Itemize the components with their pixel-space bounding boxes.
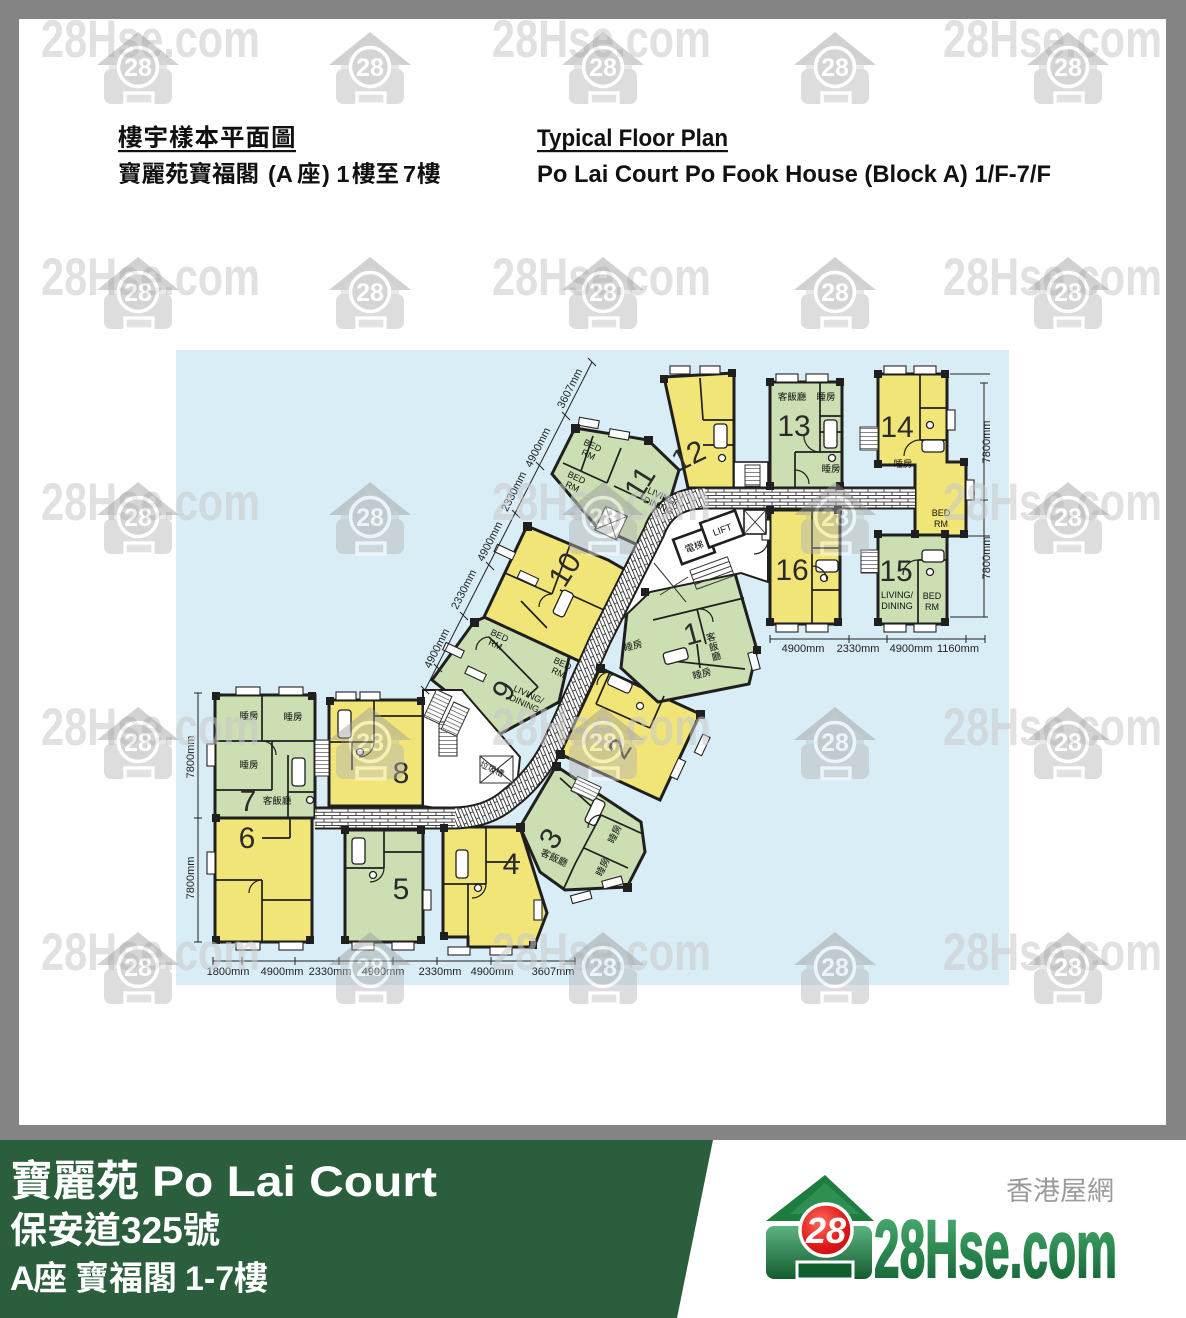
svg-text:Po Lai Court: Po Lai Court (152, 1158, 437, 1206)
svg-text:1-7: 1-7 (185, 1260, 234, 1298)
svg-text:7800mm: 7800mm (185, 857, 197, 900)
svg-text:(A: (A (268, 161, 293, 187)
svg-text:6: 6 (239, 822, 256, 855)
svg-text:15: 15 (879, 555, 912, 588)
svg-text:325: 325 (121, 1210, 183, 1251)
svg-text:2330mm: 2330mm (419, 966, 462, 978)
svg-text:5: 5 (393, 873, 410, 906)
svg-text:A: A (10, 1260, 35, 1298)
svg-text:4900mm: 4900mm (782, 643, 825, 655)
svg-text:DINING: DINING (881, 601, 913, 611)
svg-text:7: 7 (240, 785, 257, 818)
svg-text:7: 7 (403, 161, 416, 187)
svg-text:14: 14 (880, 411, 913, 444)
svg-text:Po Lai Court Po Fook House (Bl: Po Lai Court Po Fook House (Block A) 1/F… (537, 161, 1051, 188)
svg-text:4: 4 (503, 848, 520, 881)
svg-text:7800mm: 7800mm (981, 537, 993, 580)
svg-text:BED: BED (923, 591, 942, 601)
svg-text:2330mm: 2330mm (837, 643, 880, 655)
svg-text:1160mm: 1160mm (937, 643, 979, 655)
svg-text:Typical Floor Plan: Typical Floor Plan (537, 125, 728, 152)
svg-text:28: 28 (805, 1210, 846, 1251)
svg-text:28Hse.com: 28Hse.com (874, 1204, 1117, 1295)
svg-text:7800mm: 7800mm (981, 421, 993, 464)
svg-text:RM: RM (925, 602, 939, 612)
svg-text:4900mm: 4900mm (890, 643, 933, 655)
svg-text:4900mm: 4900mm (261, 966, 304, 978)
svg-text:13: 13 (777, 410, 810, 443)
svg-text:) 1: ) 1 (322, 161, 349, 187)
svg-text:16: 16 (775, 554, 808, 587)
svg-text:LIVING/: LIVING/ (881, 590, 914, 600)
